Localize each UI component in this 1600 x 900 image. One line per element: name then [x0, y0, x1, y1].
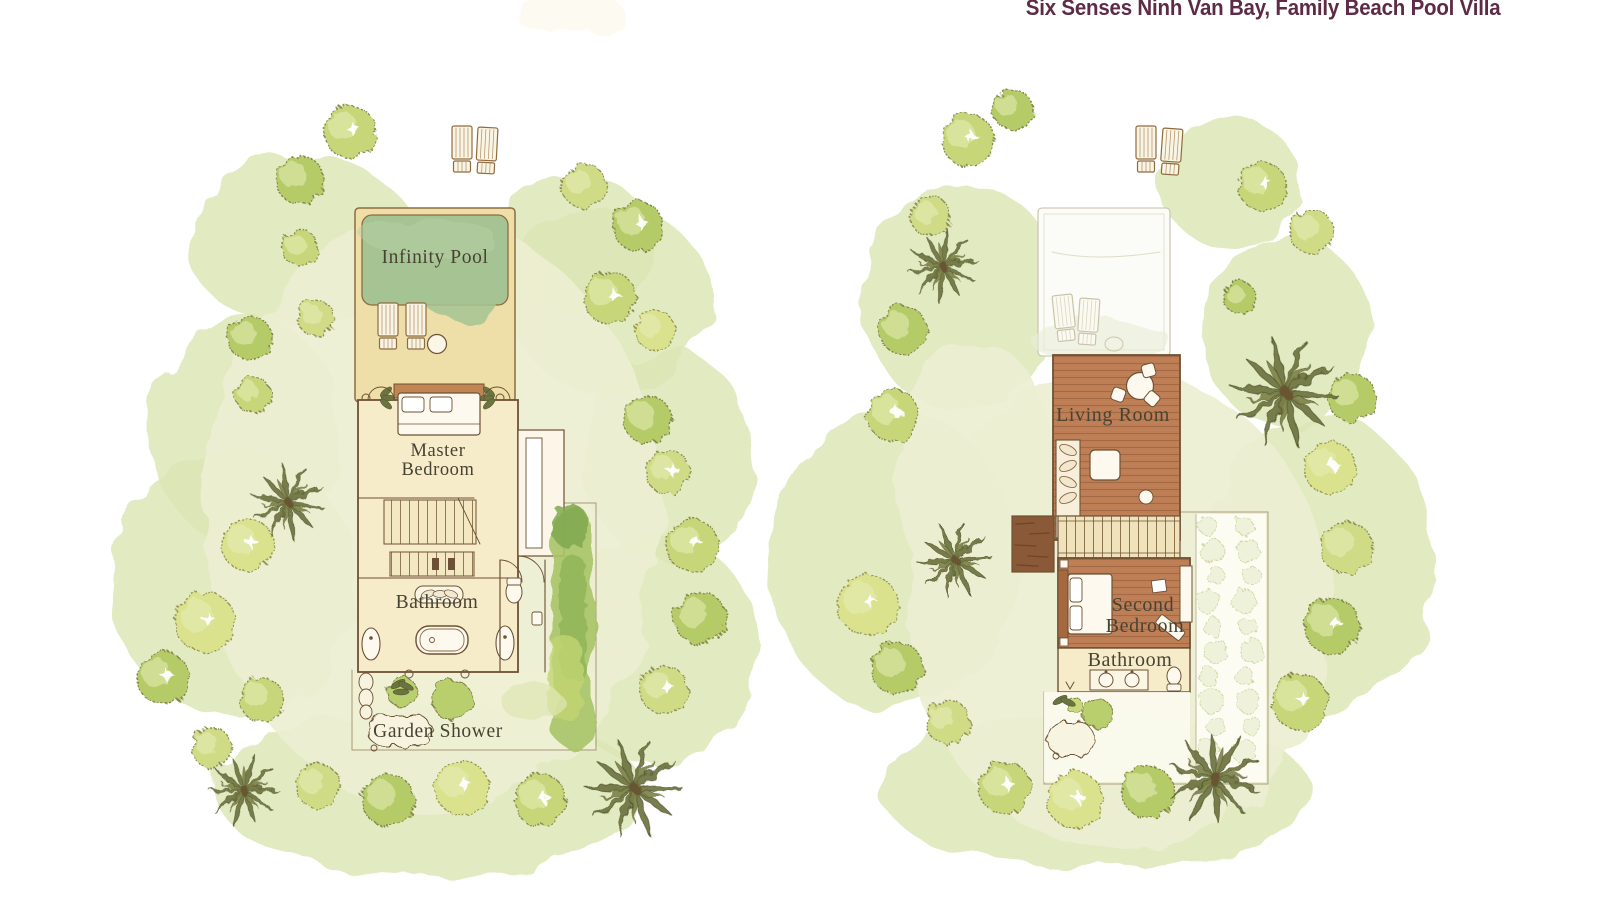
stepping-stones	[359, 673, 373, 719]
tree-highlight	[366, 780, 395, 809]
tree-highlight	[301, 304, 321, 324]
path-plant	[1207, 717, 1225, 735]
tree-highlight	[628, 402, 654, 428]
faint-tree-top	[513, 0, 623, 34]
path-plant	[1240, 639, 1264, 663]
beach-lounger	[452, 126, 472, 172]
label-second-bedroom: Second	[1112, 594, 1174, 616]
path-plant	[1236, 689, 1260, 713]
tree-highlight	[678, 598, 707, 627]
floorplan-canvas: Six Senses Ninh Van Bay, Family Beach Po…	[0, 0, 1600, 900]
path-plant	[1207, 567, 1225, 585]
path-plant	[1196, 589, 1220, 613]
deck-table	[428, 335, 447, 354]
beach-lounger	[1136, 126, 1156, 172]
tree-highlight	[566, 169, 590, 193]
label-infinity-pool: Infinity Pool	[382, 247, 489, 268]
sun-lounger	[378, 303, 398, 349]
bathtub	[416, 626, 468, 654]
tree-highlight	[280, 162, 306, 188]
sink	[1099, 673, 1113, 687]
path-plant	[1203, 617, 1221, 635]
tree-highlight	[285, 234, 305, 254]
tree-highlight	[996, 95, 1018, 117]
path-plant	[1232, 739, 1256, 763]
tree-highlight	[1126, 772, 1155, 801]
window-seat	[1180, 566, 1192, 622]
label-bathroom: Bathroom	[396, 592, 479, 613]
label-garden-shower: Garden Shower	[373, 721, 503, 742]
shower-stone	[1048, 722, 1094, 756]
path-plant	[1199, 517, 1217, 535]
label-master-bedroom-2: Bedroom	[401, 460, 474, 480]
sun-lounger	[406, 303, 426, 349]
tree-highlight	[913, 201, 935, 223]
path-plant	[1232, 589, 1256, 613]
tree-highlight	[930, 705, 954, 729]
tree-highlight	[232, 321, 256, 345]
tree-highlight	[1325, 528, 1354, 557]
tree-highlight	[300, 769, 324, 793]
path-plant	[1243, 567, 1261, 585]
tree-highlight	[1227, 286, 1245, 304]
tree-highlight	[1294, 215, 1318, 239]
tree-highlight	[1332, 380, 1358, 406]
path-plant	[1243, 717, 1261, 735]
label-second-bedroom-2: Bedroom	[1106, 615, 1185, 637]
sink	[1125, 673, 1139, 687]
label-bathroom-2: Bathroom	[1088, 649, 1173, 671]
coffee-table	[1090, 450, 1120, 480]
path-plant	[1235, 517, 1253, 535]
path-plant	[1236, 539, 1260, 563]
chair	[1141, 362, 1157, 378]
tree-highlight	[875, 648, 904, 677]
page-title: Six Senses Ninh Van Bay, Family Beach Po…	[1025, 0, 1500, 21]
tree-highlight	[638, 315, 660, 337]
tree-highlight	[244, 683, 268, 707]
shrub	[432, 680, 472, 720]
sink	[496, 626, 514, 660]
path-plant	[1204, 639, 1228, 663]
path-plant	[1200, 689, 1224, 713]
tree-highlight	[195, 733, 217, 755]
path-plant	[1200, 539, 1224, 563]
bed-headboard	[1058, 570, 1068, 638]
tree-highlight	[883, 312, 909, 338]
label-master-bedroom: Master	[411, 441, 466, 461]
path-plant	[1239, 617, 1257, 635]
floorplan-scene: Infinity Pool Master Bedroom Bathroom Ga…	[0, 0, 1600, 900]
beach-lounger	[476, 127, 498, 174]
sink	[362, 628, 380, 660]
path-plant	[1199, 667, 1217, 685]
path-plant	[1235, 667, 1253, 685]
label-living-room: Living Room	[1056, 404, 1170, 426]
tree-highlight	[238, 381, 258, 401]
